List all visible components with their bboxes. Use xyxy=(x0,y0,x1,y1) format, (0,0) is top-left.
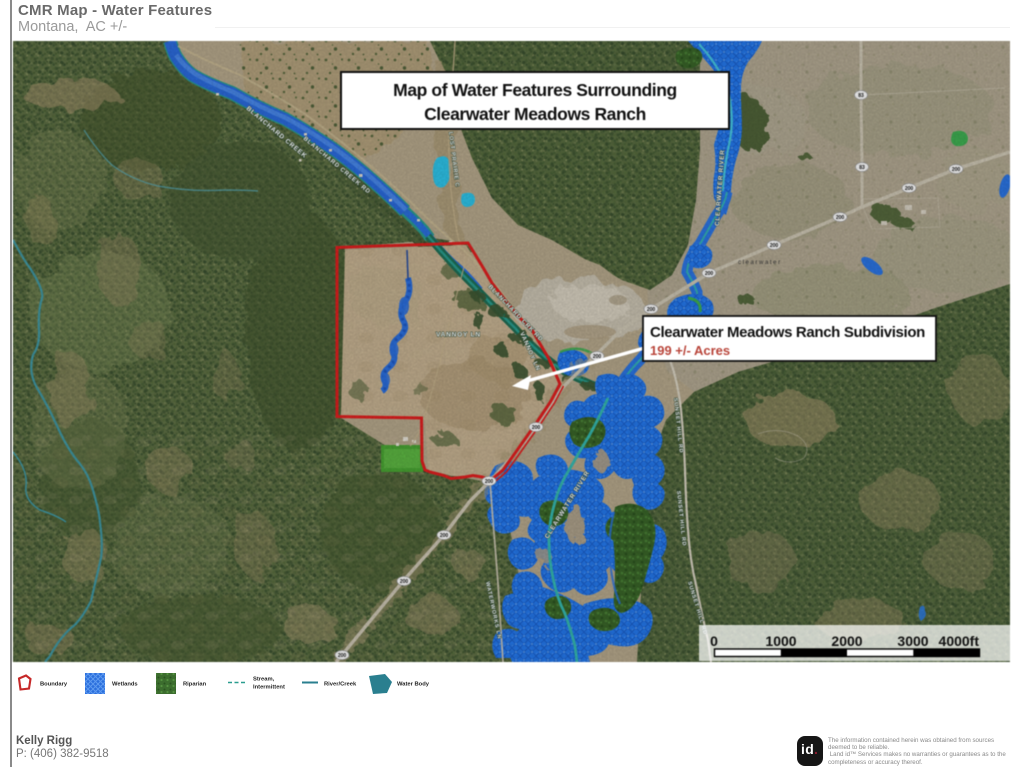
svg-text:199 +/- Acres: 199 +/- Acres xyxy=(650,343,730,358)
svg-text:Clearwater Meadows Ranch Subdi: Clearwater Meadows Ranch Subdivision xyxy=(650,324,925,341)
svg-text:4000ft: 4000ft xyxy=(939,633,980,649)
svg-text:Water Body: Water Body xyxy=(397,682,430,688)
svg-text:Intermittent: Intermittent xyxy=(253,685,285,691)
svg-text:Boundary: Boundary xyxy=(40,682,68,688)
svg-text:0: 0 xyxy=(710,633,718,649)
svg-text:1000: 1000 xyxy=(765,633,796,649)
svg-text:Riparian: Riparian xyxy=(183,682,207,688)
svg-text:Clearwater Meadows Ranch: Clearwater Meadows Ranch xyxy=(424,104,646,124)
svg-text:Stream,: Stream, xyxy=(253,677,275,683)
svg-text:Map of Water Features Surround: Map of Water Features Surrounding xyxy=(393,80,677,100)
svg-text:2000: 2000 xyxy=(831,633,862,649)
svg-text:River/Creek: River/Creek xyxy=(324,682,357,688)
svg-text:Wetlands: Wetlands xyxy=(112,682,138,688)
svg-text:3000: 3000 xyxy=(897,633,928,649)
